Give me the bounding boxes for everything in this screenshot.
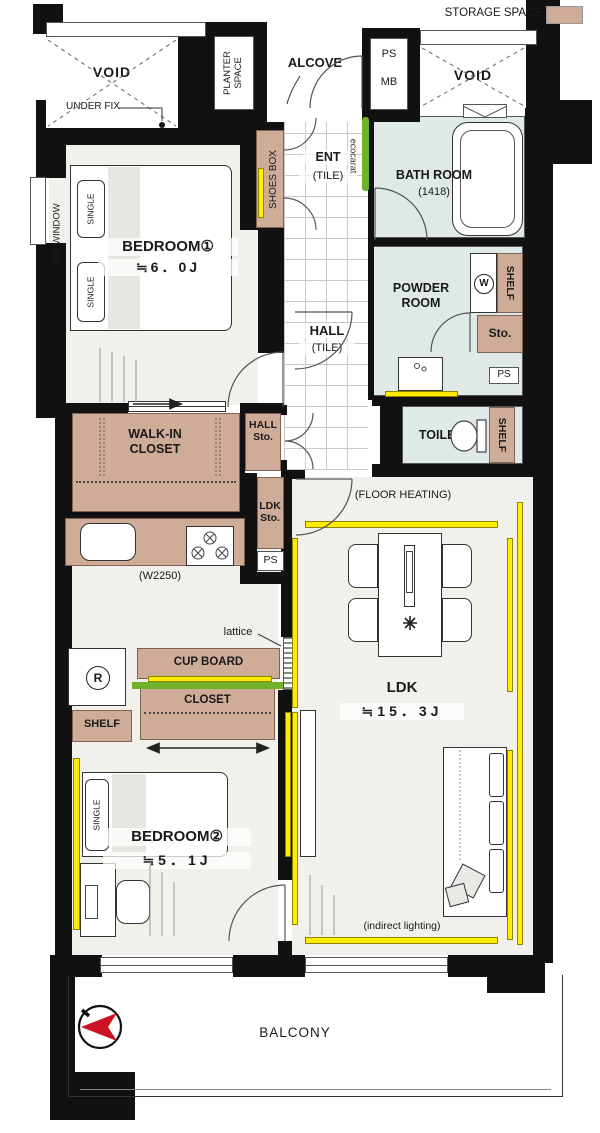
ldk-name: LDK (372, 679, 432, 697)
cup-board-label: CUP BOARD (137, 656, 280, 670)
powder-ps-label: PS (489, 369, 519, 381)
wic-line1: WALK-IN (128, 427, 181, 441)
desk-chair (116, 880, 150, 924)
kitchen-width-label: (W2250) (105, 570, 215, 583)
upper-ledge (420, 30, 537, 45)
ldk-light-left (292, 538, 298, 708)
closet-label: CLOSET (140, 694, 275, 708)
table-runner-inner (406, 551, 413, 593)
bedroom2-name: BEDROOM② (103, 828, 251, 846)
powder-sto-label: Sto. (477, 326, 523, 340)
single-text: SINGLE (92, 799, 102, 830)
cupboard-accent (132, 682, 285, 689)
hall-sto-label: HALLSto. (245, 419, 281, 444)
kitchen-ps-label: PS (257, 554, 284, 566)
bathroom-name: BATH ROOM (378, 168, 490, 183)
bay-window-label: ​BAY WINDOW (49, 163, 66, 305)
single-text: SINGLE (86, 276, 96, 307)
balcony-rail-inner (80, 1089, 551, 1090)
planter-line1: PLANTER (222, 51, 233, 95)
under-fix-label: UNDER FIX (58, 101, 128, 113)
wall (233, 955, 305, 977)
powder-shelf-label: SHELF (497, 253, 523, 313)
powder-line1: POWDER (393, 281, 449, 295)
kitchen-sink (80, 523, 136, 561)
desk-monitor (85, 885, 98, 919)
indirect-lighting-label: (indirect lighting) (342, 920, 462, 932)
hall-sto-line1: HALL (249, 419, 277, 431)
wall (258, 225, 284, 353)
ldk-light-left (292, 712, 298, 925)
ldk-light-right-outer (517, 502, 523, 945)
ps-label-top: PS (371, 48, 407, 61)
shoes-box-text: SHOES BOX (268, 150, 279, 209)
ldk-light-wall (285, 712, 291, 857)
void-right-label: VOID (443, 67, 503, 84)
shelf-text: SHELF (496, 418, 508, 452)
wic-label: WALK-INCLOSET (90, 427, 220, 457)
hall-sto-line2: Sto. (253, 431, 273, 443)
bed1-pillow1-label: SINGLE (77, 180, 105, 238)
floor-heating-label: (FLOOR HEATING) (338, 489, 468, 502)
wall (372, 238, 538, 246)
ldk-sto-label: LDKSto. (255, 500, 285, 525)
washing-machine-mark: W (474, 273, 494, 294)
ldk-window (305, 957, 448, 973)
dining-chair (348, 544, 378, 588)
wall (240, 572, 292, 584)
wall (523, 406, 535, 464)
ecocarat-panel (362, 117, 369, 191)
planter-space-label: PLANTERSPACE (214, 36, 254, 110)
shoes-box-label: SHOES BOX (262, 130, 284, 228)
powder-line2: ROOM (402, 296, 441, 310)
bedroom2-size: ≒5．1J (103, 852, 251, 869)
dining-chair (348, 598, 378, 642)
bedroom2-shelf-label: SHELF (72, 718, 132, 731)
powder-room-name: POWDERROOM (376, 281, 466, 311)
shelf-text: SHELF (504, 266, 516, 300)
bedroom1-name: BEDROOM① (98, 238, 238, 256)
wall (57, 128, 250, 145)
mb-label: MB (371, 76, 407, 89)
bathroom-size: (1418) (378, 186, 490, 199)
sofa-cushion (489, 849, 504, 893)
refrigerator-mark: R (86, 666, 110, 690)
toilet-label: TOILET (405, 428, 477, 443)
ldk-size: ≒15．3J (340, 703, 464, 720)
ldk-light-right (507, 750, 513, 940)
wall (281, 584, 292, 637)
wall (281, 405, 287, 415)
wic-hanger-rail (76, 481, 236, 483)
sofa-cushion (489, 801, 504, 845)
bay-window-glass (30, 177, 46, 245)
ldk-light-right (507, 538, 513, 692)
bathroom-window (463, 104, 507, 118)
wall (380, 398, 402, 468)
tv-board (300, 710, 316, 857)
wall (368, 240, 374, 400)
toilet-shelf-label: SHELF (489, 407, 515, 463)
sliding-door (128, 401, 226, 412)
balcony-label: BALCONY (235, 1025, 355, 1041)
cupboard-light (148, 676, 272, 682)
wall (525, 108, 538, 240)
storage-legend-swatch (546, 6, 583, 24)
r-circle: R (86, 666, 110, 690)
single-text: SINGLE (86, 193, 96, 224)
kitchen-stove (186, 526, 234, 566)
wall (523, 246, 535, 396)
dining-chair (442, 544, 472, 588)
closet-hanger-rail (144, 712, 271, 714)
lattice-label: lattice (213, 626, 263, 639)
void-left-label: VOID (82, 64, 142, 81)
alcove-area (267, 38, 362, 122)
alcove-label: ALCOVE (270, 55, 360, 70)
sofa-cushion (489, 753, 504, 797)
vanity (398, 357, 443, 391)
wall (372, 464, 533, 477)
bedroom1-size: ≒6．0J (98, 259, 238, 276)
wall (533, 160, 553, 963)
planter-line2: SPACE (233, 57, 244, 89)
ecocarat-text: ecocarat (348, 138, 358, 173)
upper-ledge (46, 22, 206, 37)
ldk-sto-line2: Sto. (260, 512, 280, 524)
vanity-light (385, 391, 458, 397)
floor-plan: STORAGE SPACE VOID VOID UNDER FIX PLANTE… (0, 0, 600, 1133)
wall (72, 955, 102, 977)
ldk-sto-line1: LDK (259, 500, 281, 512)
ldk-light-top (305, 521, 498, 528)
wall (538, 100, 592, 164)
void-left-area (46, 38, 178, 128)
bedroom2-light (73, 758, 80, 930)
hall-label: HALL (299, 323, 355, 338)
ldk-light-bottom (305, 937, 498, 944)
wall (281, 460, 287, 477)
bedroom2-window (100, 957, 233, 973)
storage-legend-label: STORAGE SPACE (427, 7, 542, 21)
bay-window-text: BAY WINDOW (52, 203, 63, 265)
wic-line2: CLOSET (130, 442, 181, 456)
ecocarat-label: ecocarat (345, 118, 361, 193)
w-circle: W (474, 274, 494, 294)
hall-tile-label: (TILE) (299, 342, 355, 355)
dining-chair (442, 598, 472, 642)
